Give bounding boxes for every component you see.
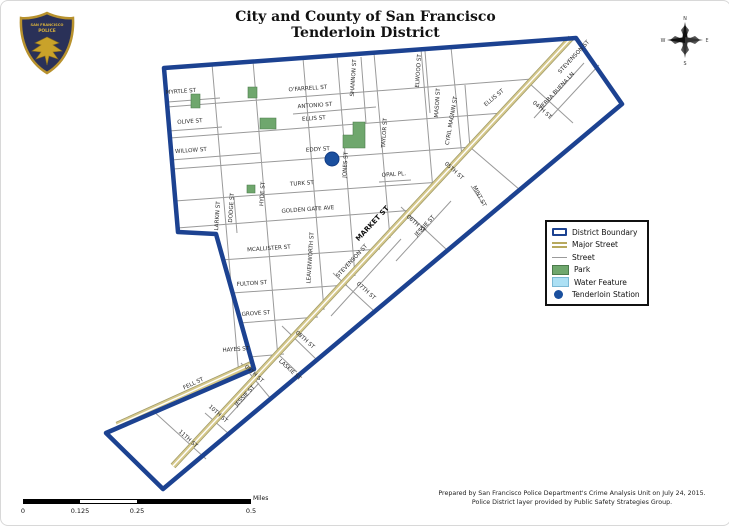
- map-document-page: SAN FRANCISCO POLICE City and County of …: [0, 0, 729, 526]
- legend-label: Tenderloin Station: [572, 290, 640, 299]
- legend-label: Park: [574, 265, 590, 274]
- street-label: EDDY ST: [306, 146, 331, 154]
- station-dot-symbol: [554, 290, 563, 299]
- tenderloin-station-marker: [325, 152, 339, 166]
- legend-label: Major Street: [572, 240, 618, 249]
- street-label: OLIVE ST: [177, 118, 203, 126]
- attribution-text: Prepared by San Francisco Police Departm…: [421, 489, 723, 507]
- street-label: FULTON ST: [237, 280, 268, 288]
- scale-unit-label: Miles: [253, 495, 268, 502]
- district-boundary-symbol: [552, 228, 567, 236]
- street-label: SHANNON ST: [350, 59, 359, 97]
- legend-label: District Boundary: [572, 228, 637, 237]
- street-label: GOLDEN GATE AVE: [281, 205, 335, 215]
- street-label: TURK ST: [289, 180, 315, 188]
- street-label: LASKIE ST: [277, 359, 302, 383]
- street-label: DODGE ST: [228, 192, 236, 223]
- street-label: OPAL PL.: [382, 171, 407, 179]
- street-label: WILLOW ST: [175, 147, 208, 155]
- street-label: O'FARRELL ST: [288, 85, 328, 94]
- street-label: HYDE ST: [259, 181, 267, 206]
- attribution-line1: Prepared by San Francisco Police Departm…: [421, 489, 723, 498]
- water-feature-symbol: [552, 277, 569, 287]
- legend-item-major-street: Major Street: [552, 239, 643, 252]
- street-label: MASON ST: [434, 87, 442, 117]
- legend-item-district-boundary: District Boundary: [552, 226, 643, 239]
- major-street-lines: [117, 38, 571, 466]
- street-label: ANTONIO ST: [297, 102, 333, 110]
- legend-item-street: Street: [552, 251, 643, 264]
- scale-tick-025: 0.25: [130, 507, 144, 515]
- street-label: ELLIS ST: [483, 88, 505, 108]
- street-label: JONES ST: [342, 151, 350, 179]
- street-label: HAYES ST: [222, 346, 250, 354]
- legend-item-park: Park: [552, 264, 643, 277]
- street-label: CYRIL MAGNIN ST: [445, 95, 460, 145]
- legend-label: Street: [572, 253, 595, 262]
- street-label: LEAVENWORTH ST: [306, 231, 316, 283]
- street-label: GROVE ST: [241, 310, 271, 318]
- scale-tick-05: 0.5: [246, 507, 256, 515]
- legend-label: Water Feature: [574, 278, 627, 287]
- scale-tick-0125: 0.125: [71, 507, 90, 515]
- scale-bar: 0 0.125 0.25 0.5 Miles: [19, 495, 269, 519]
- legend-item-water-feature: Water Feature: [552, 276, 643, 289]
- street-label: MINT ST: [471, 185, 487, 208]
- street-label: 07TH ST: [355, 281, 377, 302]
- legend-item-tenderloin-station: Tenderloin Station: [552, 289, 643, 302]
- street-label: LARKIN ST: [214, 201, 222, 231]
- attribution-line2: Police District layer provided by Public…: [421, 498, 723, 507]
- park-symbol: [552, 265, 569, 275]
- major-street-symbol: [552, 242, 567, 248]
- street-label: YERBA BUENA LN: [538, 71, 576, 112]
- scale-bar-graphic: [23, 499, 251, 504]
- street-label: ELWOOD ST: [415, 53, 423, 87]
- map-legend: District Boundary Major Street Street Pa…: [545, 220, 649, 306]
- street-symbol: [552, 257, 567, 258]
- street-label: ELLIS ST: [302, 115, 327, 123]
- scale-tick-0: 0: [21, 507, 25, 515]
- street-label: TAYLOR ST: [381, 117, 389, 149]
